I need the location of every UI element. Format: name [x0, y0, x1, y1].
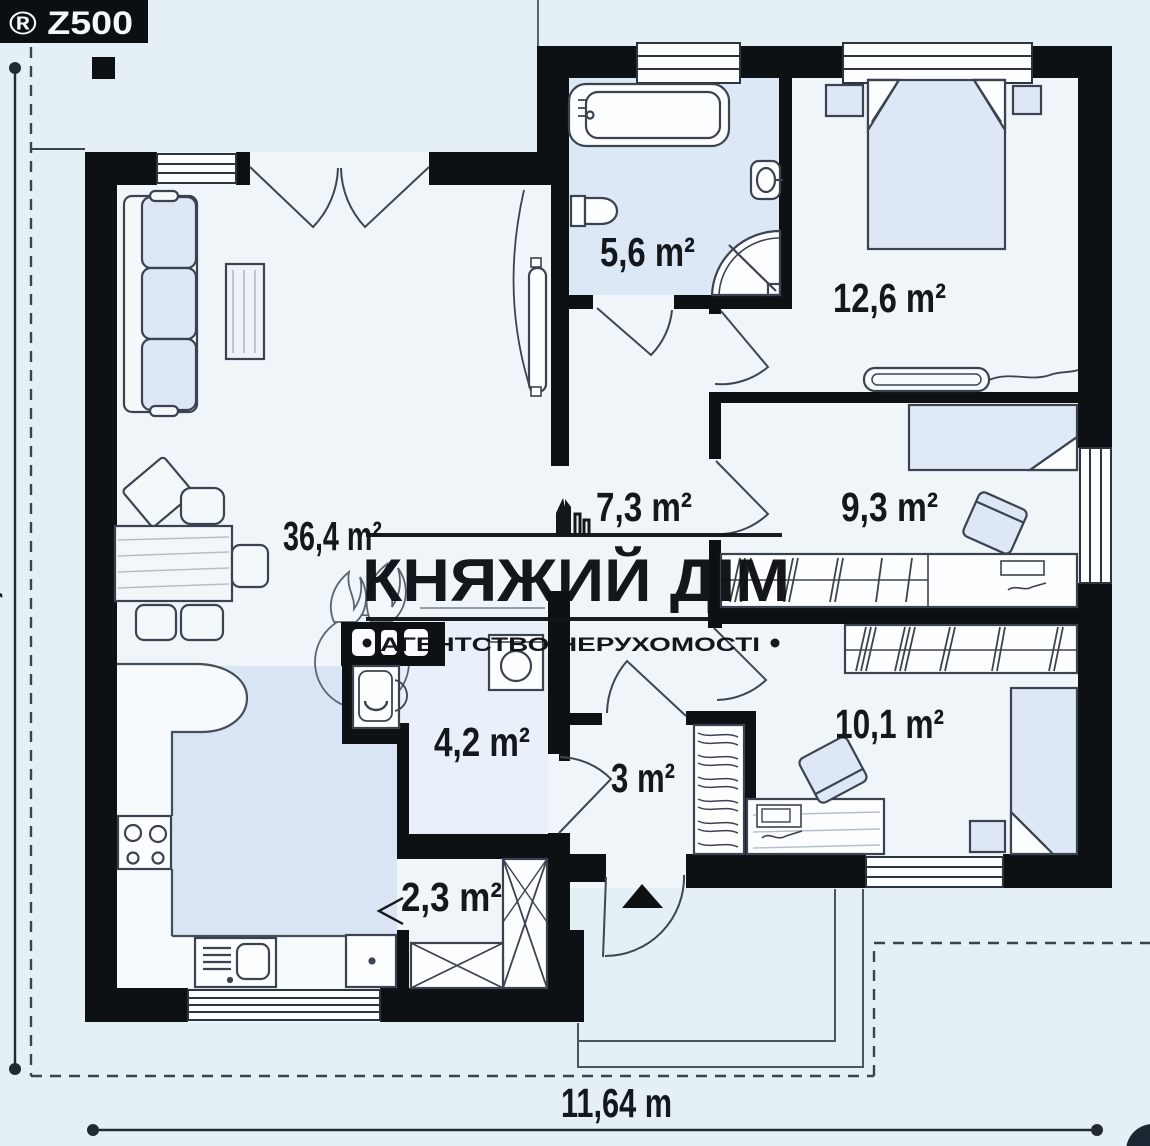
svg-text:11,34 m: 11,34 m [0, 496, 5, 644]
svg-text:® Z500: ® Z500 [9, 5, 133, 41]
svg-text:4,2 m²: 4,2 m² [434, 719, 530, 765]
svg-text:5,6 m²: 5,6 m² [600, 229, 695, 275]
svg-text:АГЕНТСТВО НЕРУХОМОСТІ: АГЕНТСТВО НЕРУХОМОСТІ [380, 635, 760, 656]
svg-text:12,6 m²: 12,6 m² [833, 275, 946, 321]
svg-text:11,64 m: 11,64 m [561, 1080, 672, 1126]
svg-text:2,3 m²: 2,3 m² [401, 874, 502, 920]
svg-text:9,3 m²: 9,3 m² [841, 484, 938, 530]
svg-text:10,1 m²: 10,1 m² [835, 701, 944, 747]
svg-text:3 m²: 3 m² [611, 755, 675, 801]
svg-text:КНЯЖИЙ ДІМ: КНЯЖИЙ ДІМ [362, 547, 790, 614]
svg-text:7,3 m²: 7,3 m² [596, 484, 692, 530]
